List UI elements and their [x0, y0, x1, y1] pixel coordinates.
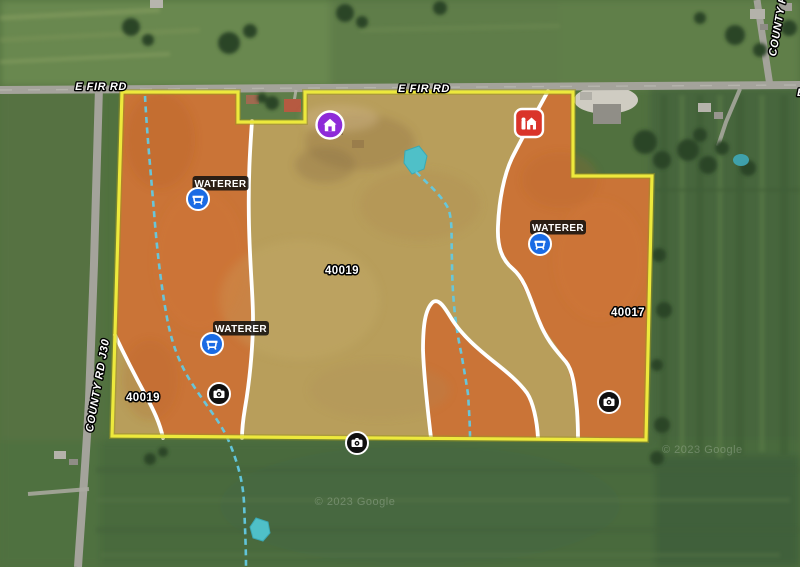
- google-watermark: © 2023 Google: [662, 444, 743, 456]
- notch-house: [284, 99, 301, 112]
- road-label-e-fir-rd-left: E FIR RD: [75, 81, 127, 93]
- waterer-trough-icon[interactable]: [187, 188, 209, 210]
- field-label-bottom-left: 40019: [126, 392, 160, 404]
- google-watermark: © 2023 Google: [315, 496, 396, 508]
- camera-marker-2[interactable]: [346, 432, 368, 454]
- shed-marker[interactable]: [317, 112, 344, 139]
- camera-marker-1[interactable]: [208, 383, 230, 405]
- waterer-label: WATERER: [215, 324, 267, 335]
- field-label-right: 40017: [611, 307, 645, 319]
- waterer-trough-icon[interactable]: [201, 333, 223, 355]
- camera-marker-3[interactable]: [598, 391, 620, 413]
- barn-marker[interactable]: [515, 109, 543, 137]
- road-label-e-fir-rd-center: E FIR RD: [398, 83, 450, 95]
- field-label-center: 40019: [325, 265, 359, 277]
- pond-right: [733, 154, 749, 166]
- satellite-map-view[interactable]: E FIR RD E FIR RD E FIR RD COUNTY RD J30…: [0, 0, 800, 567]
- waterer-trough-icon[interactable]: [529, 233, 551, 255]
